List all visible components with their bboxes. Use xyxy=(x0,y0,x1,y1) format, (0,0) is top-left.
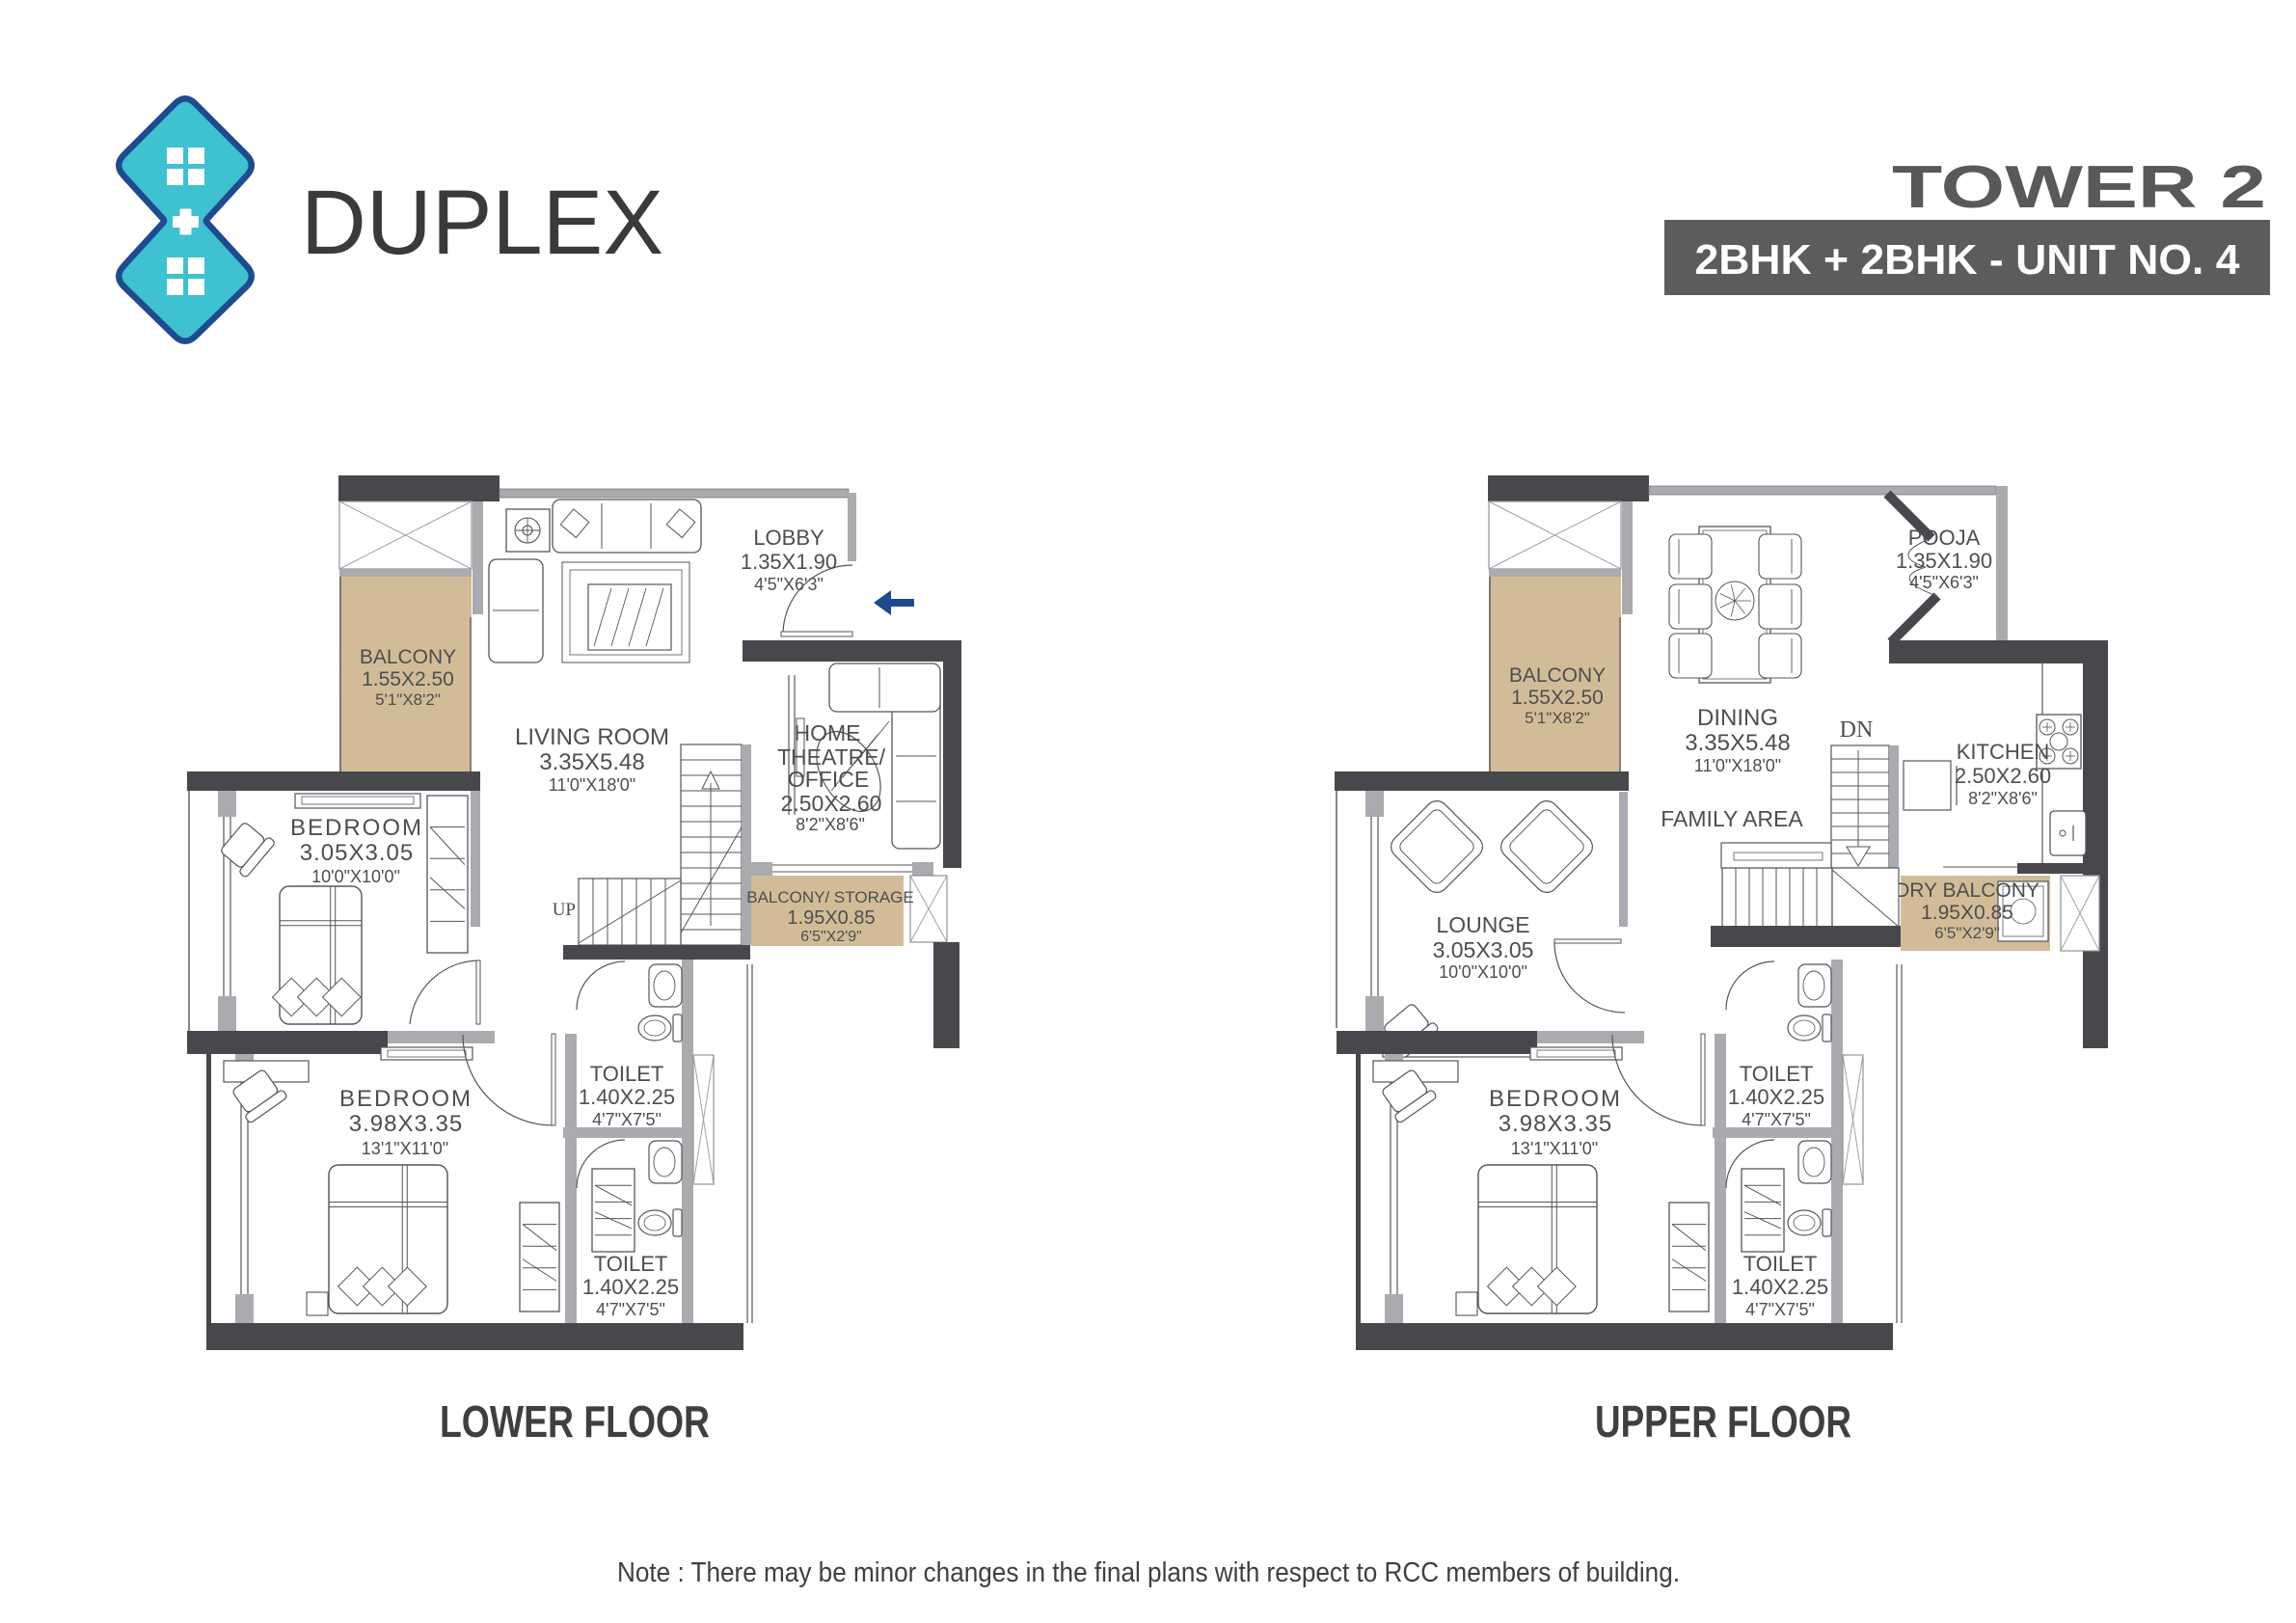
svg-text:6'5"X2'9": 6'5"X2'9" xyxy=(1934,924,2000,942)
svg-text:8'2"X8'6": 8'2"X8'6" xyxy=(796,815,865,834)
svg-text:TOILET: TOILET xyxy=(594,1252,668,1276)
svg-text:TOWER 2: TOWER 2 xyxy=(1892,154,2266,221)
svg-text:1.35X1.90: 1.35X1.90 xyxy=(741,550,837,574)
svg-text:3.35X5.48: 3.35X5.48 xyxy=(1685,730,1790,756)
svg-text:3.05X3.05: 3.05X3.05 xyxy=(300,840,414,866)
svg-text:TOILET: TOILET xyxy=(590,1062,664,1086)
svg-text:2BHK + 2BHK - UNIT NO. 4: 2BHK + 2BHK - UNIT NO. 4 xyxy=(1695,236,2241,284)
svg-text:DINING: DINING xyxy=(1697,705,1778,731)
svg-text:4'7"X7'5": 4'7"X7'5" xyxy=(592,1110,662,1129)
svg-text:UPPER FLOOR: UPPER FLOOR xyxy=(1595,1396,1851,1447)
svg-text:TOILET: TOILET xyxy=(1743,1252,1818,1276)
svg-text:1.40X2.25: 1.40X2.25 xyxy=(582,1275,679,1299)
svg-text:1.40X2.25: 1.40X2.25 xyxy=(579,1085,675,1109)
svg-text:1.95X0.85: 1.95X0.85 xyxy=(787,907,875,929)
svg-text:BALCONY: BALCONY xyxy=(360,646,456,668)
svg-text:5'1"X8'2": 5'1"X8'2" xyxy=(375,690,441,709)
svg-text:2.50X2.60: 2.50X2.60 xyxy=(1955,764,2051,788)
svg-text:1.55X2.50: 1.55X2.50 xyxy=(362,668,454,690)
svg-text:TOILET: TOILET xyxy=(1740,1062,1814,1086)
svg-text:OFFICE: OFFICE xyxy=(788,767,869,792)
svg-text:3.05X3.05: 3.05X3.05 xyxy=(1433,937,1534,962)
svg-text:LIVING ROOM: LIVING ROOM xyxy=(515,724,669,750)
svg-text:10'0"X10'0": 10'0"X10'0" xyxy=(311,867,400,886)
svg-text:2.50X2.60: 2.50X2.60 xyxy=(781,791,882,816)
svg-text:3.98X3.35: 3.98X3.35 xyxy=(349,1111,463,1137)
svg-text:11'0"X18'0": 11'0"X18'0" xyxy=(549,775,635,795)
svg-text:BEDROOM: BEDROOM xyxy=(290,815,423,841)
svg-text:POOJA: POOJA xyxy=(1908,526,1981,550)
svg-text:4'7"X7'5": 4'7"X7'5" xyxy=(1742,1110,1811,1129)
svg-text:4'7"X7'5": 4'7"X7'5" xyxy=(1745,1300,1815,1319)
svg-text:1.40X2.25: 1.40X2.25 xyxy=(1728,1085,1824,1109)
svg-text:KITCHEN: KITCHEN xyxy=(1957,740,2050,764)
svg-text:8'2"X8'6": 8'2"X8'6" xyxy=(1968,789,2038,808)
svg-text:BEDROOM: BEDROOM xyxy=(1489,1086,1622,1112)
svg-text:3.35X5.48: 3.35X5.48 xyxy=(539,749,644,775)
svg-text:6'5"X2'9": 6'5"X2'9" xyxy=(800,929,862,945)
svg-text:LOWER FLOOR: LOWER FLOOR xyxy=(440,1396,710,1447)
svg-text:1.55X2.50: 1.55X2.50 xyxy=(1511,687,1604,709)
svg-text:LOBBY: LOBBY xyxy=(753,526,824,550)
svg-text:UP: UP xyxy=(553,900,576,920)
svg-text:Note : There may be minor chan: Note : There may be minor changes in the… xyxy=(617,1557,1680,1588)
svg-text:1.40X2.25: 1.40X2.25 xyxy=(1732,1275,1828,1299)
svg-text:FAMILY AREA: FAMILY AREA xyxy=(1661,806,1803,831)
svg-text:4'7"X7'5": 4'7"X7'5" xyxy=(596,1300,665,1319)
svg-text:13'1"X11'0": 13'1"X11'0" xyxy=(362,1139,448,1158)
svg-text:1.35X1.90: 1.35X1.90 xyxy=(1896,549,1992,573)
svg-text:11'0"X18'0": 11'0"X18'0" xyxy=(1694,756,1781,775)
svg-text:4'5"X6'3": 4'5"X6'3" xyxy=(1909,573,1979,592)
svg-text:HOME: HOME xyxy=(795,720,861,745)
svg-text:BALCONY/ STORAGE: BALCONY/ STORAGE xyxy=(746,888,914,906)
svg-text:10'0"X10'0": 10'0"X10'0" xyxy=(1439,962,1527,982)
svg-text:4'5"X6'3": 4'5"X6'3" xyxy=(754,575,824,594)
svg-text:BEDROOM: BEDROOM xyxy=(339,1086,473,1112)
svg-text:13'1"X11'0": 13'1"X11'0" xyxy=(1511,1139,1598,1158)
svg-text:5'1"X8'2": 5'1"X8'2" xyxy=(1525,709,1590,727)
svg-text:DUPLEX: DUPLEX xyxy=(301,172,663,274)
svg-text:BALCONY: BALCONY xyxy=(1509,664,1606,687)
svg-text:1.95X0.85: 1.95X0.85 xyxy=(1921,902,2013,924)
svg-text:DRY BALCONY: DRY BALCONY xyxy=(1895,879,2039,902)
svg-text:DN: DN xyxy=(1840,717,1874,743)
svg-text:3.98X3.35: 3.98X3.35 xyxy=(1499,1111,1612,1137)
svg-text:LOUNGE: LOUNGE xyxy=(1436,912,1529,937)
